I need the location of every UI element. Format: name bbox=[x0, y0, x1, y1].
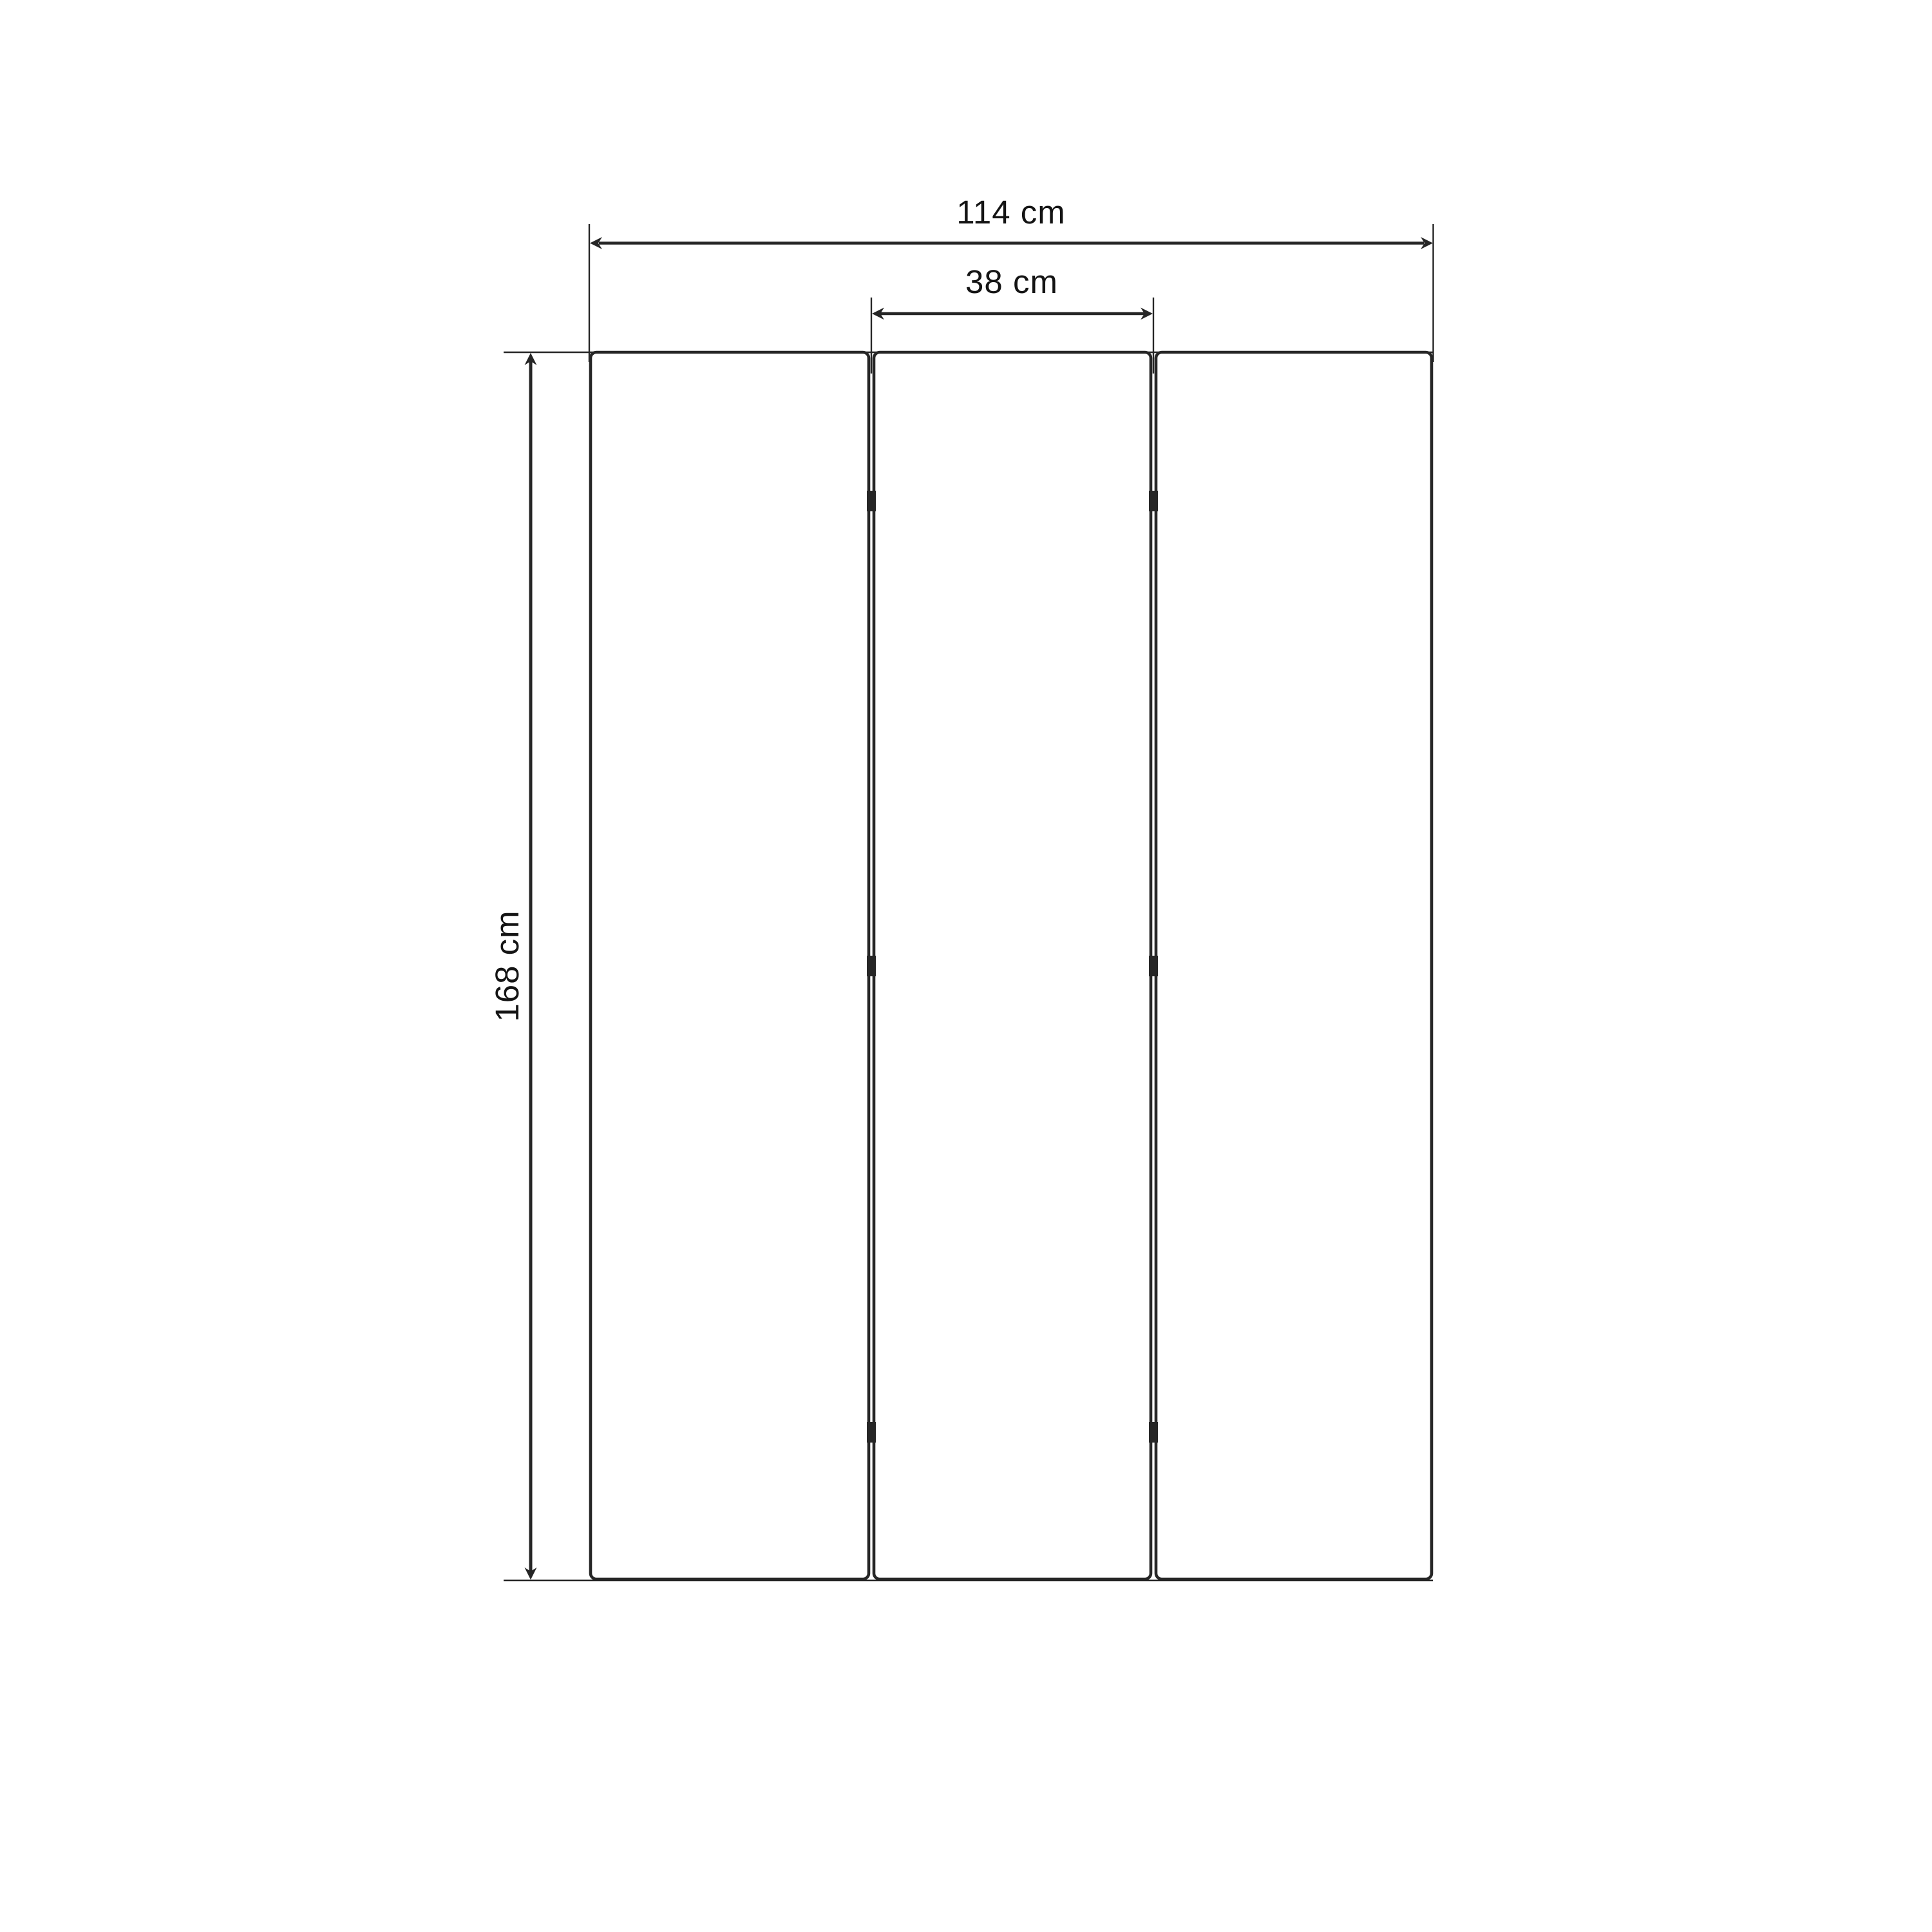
panel-right bbox=[1156, 352, 1432, 1579]
hinge-marker bbox=[1149, 956, 1158, 976]
hinge-marker bbox=[867, 956, 876, 976]
panel-left bbox=[591, 352, 869, 1579]
dimension-diagram-page: 114 cm 38 cm 168 cm bbox=[0, 0, 1932, 1932]
label-height: 168 cm bbox=[489, 910, 526, 1021]
hinge-marker bbox=[867, 1422, 876, 1443]
label-total-width: 114 cm bbox=[956, 194, 1065, 231]
hinge-marker bbox=[867, 491, 876, 511]
panel-middle bbox=[874, 352, 1151, 1579]
hinge-marker bbox=[1149, 491, 1158, 511]
label-panel-width: 38 cm bbox=[965, 263, 1058, 300]
hinge-marker bbox=[1149, 1422, 1158, 1443]
dimension-diagram: 114 cm 38 cm 168 cm bbox=[0, 0, 1932, 1932]
